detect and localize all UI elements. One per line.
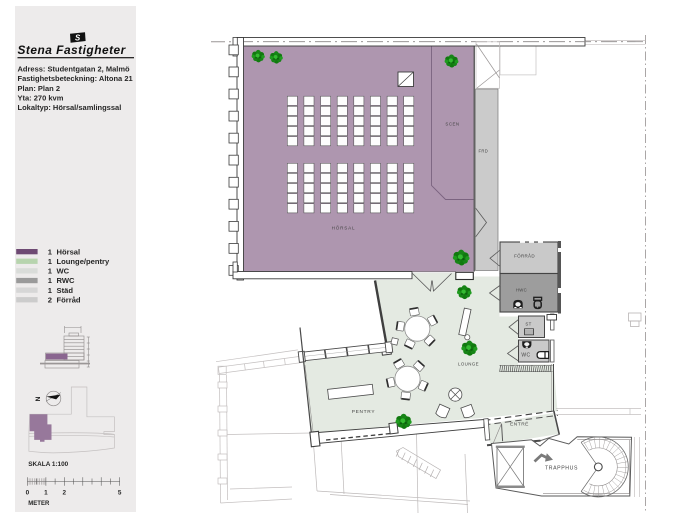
svg-text:RWC: RWC [57,276,76,285]
svg-text:SKALA 1:100: SKALA 1:100 [28,461,68,468]
svg-text:Yta: 270 kvm: Yta: 270 kvm [18,94,64,103]
svg-text:Plan: Plan 2: Plan: Plan 2 [18,84,61,93]
svg-text:SCEN: SCEN [445,122,459,127]
svg-text:5: 5 [118,490,122,497]
svg-text:Hörsal: Hörsal [57,247,81,256]
svg-text:Adress: Studentgatan 2, Malmö: Adress: Studentgatan 2, Malmö [18,65,131,74]
svg-text:FRD: FRD [479,149,489,154]
svg-text:2: 2 [48,295,52,304]
svg-text:WC: WC [57,267,70,276]
svg-text:ST: ST [525,322,531,327]
svg-text:METER: METER [28,501,50,507]
svg-text:LOUNGE: LOUNGE [458,362,479,367]
svg-text:N: N [35,396,42,401]
svg-text:Fastighetsbeteckning: Altona 2: Fastighetsbeteckning: Altona 21 [18,74,133,83]
svg-text:Stena Fastigheter: Stena Fastigheter [18,43,127,57]
svg-text:HÖRSAL: HÖRSAL [332,225,356,231]
svg-text:WC: WC [521,353,530,359]
svg-text:ENTRÉ: ENTRÉ [510,421,529,428]
svg-text:S: S [75,34,81,43]
svg-text:Lokaltyp: Hörsal/samlingssal: Lokaltyp: Hörsal/samlingssal [18,103,122,112]
svg-text:FÖRRÅD: FÖRRÅD [514,253,535,259]
svg-text:Städ: Städ [57,286,74,295]
svg-text:TRAPPHUS: TRAPPHUS [545,466,578,472]
svg-text:HWC: HWC [516,288,527,293]
svg-text:PENTRY: PENTRY [352,409,376,415]
svg-text:1: 1 [44,490,48,497]
svg-text:Förråd: Förråd [57,295,81,304]
svg-text:0: 0 [26,490,30,497]
svg-text:2: 2 [63,490,67,497]
svg-text:Lounge/pentry: Lounge/pentry [57,257,111,266]
